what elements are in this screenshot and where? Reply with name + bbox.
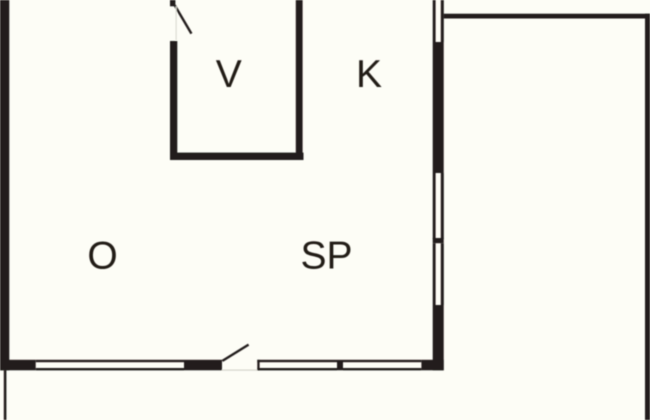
svg-text:SP: SP — [300, 235, 352, 278]
svg-text:O: O — [87, 235, 117, 278]
svg-text:V: V — [216, 53, 242, 96]
svg-text:K: K — [356, 53, 382, 96]
